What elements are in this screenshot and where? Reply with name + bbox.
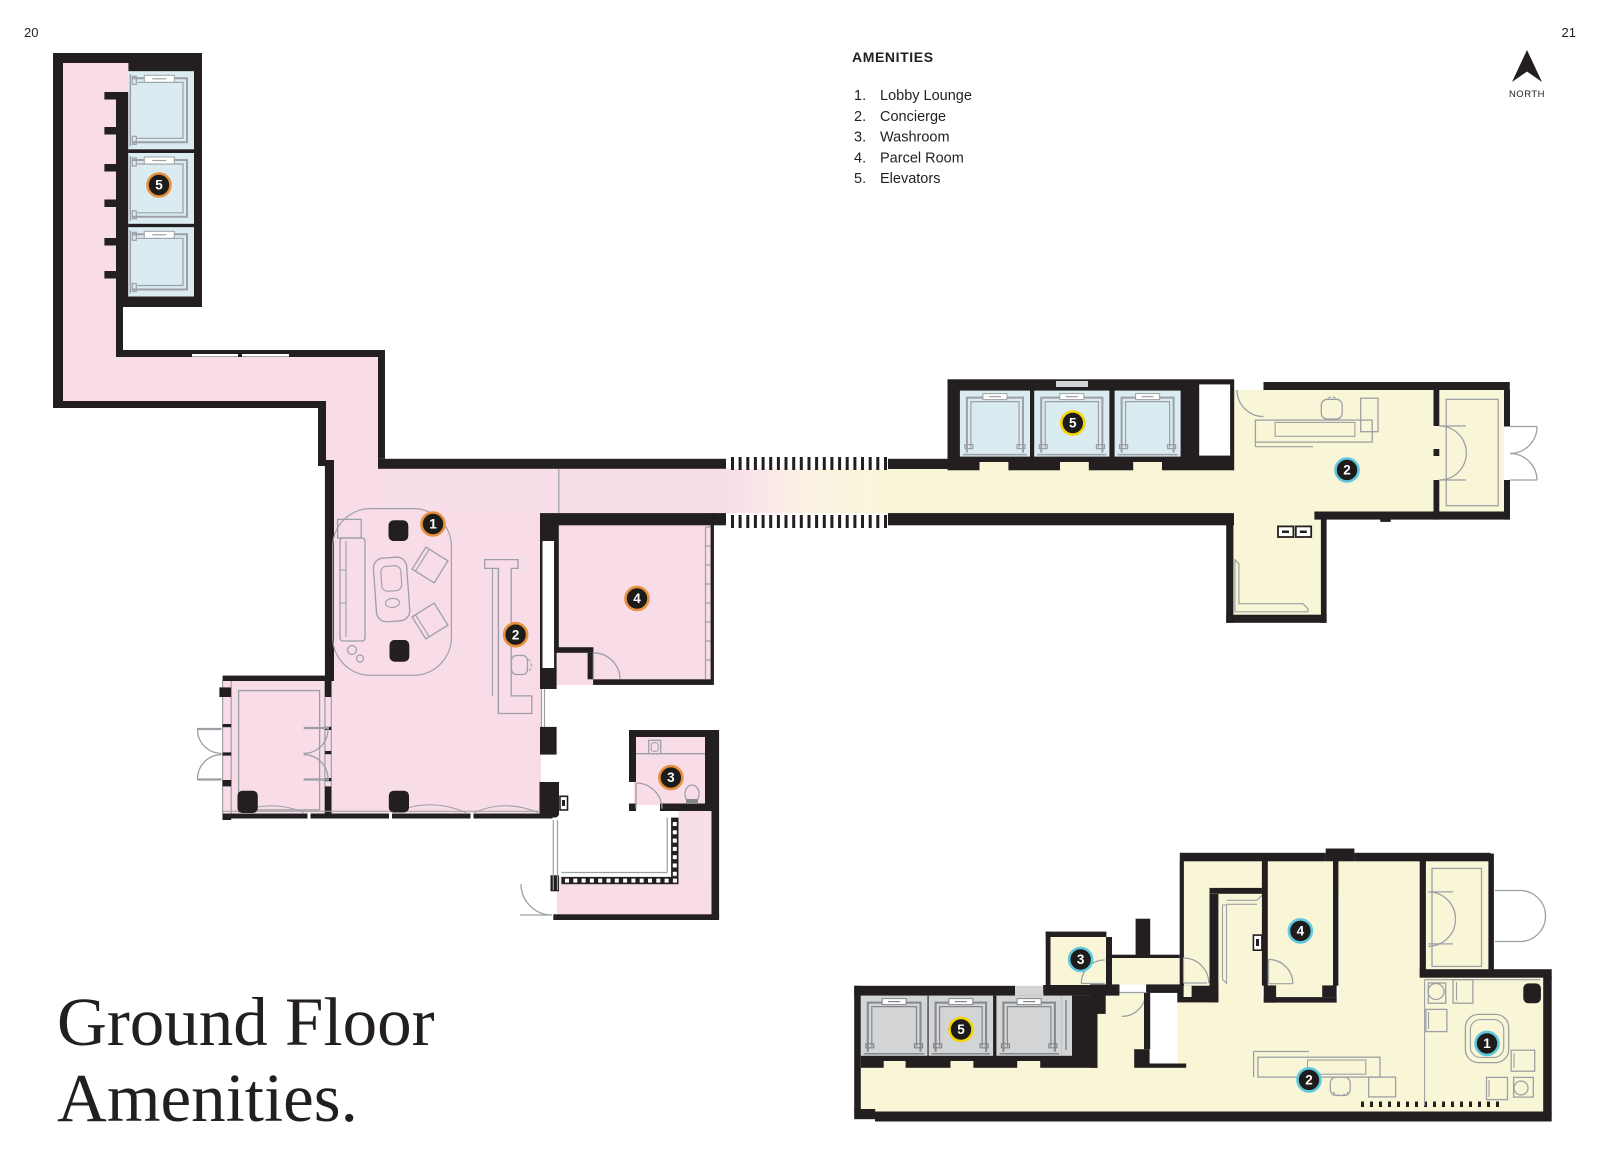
svg-text:5: 5 xyxy=(957,1022,965,1037)
svg-text:1.: 1. xyxy=(854,88,866,104)
svg-text:AMENITIES: AMENITIES xyxy=(852,49,934,65)
svg-text:2.: 2. xyxy=(854,109,866,125)
svg-text:3: 3 xyxy=(667,770,675,785)
svg-text:20: 20 xyxy=(24,25,38,40)
svg-text:4.: 4. xyxy=(854,150,866,166)
svg-text:3: 3 xyxy=(1077,952,1085,967)
svg-text:2: 2 xyxy=(1305,1073,1313,1088)
svg-text:1: 1 xyxy=(1483,1036,1491,1051)
svg-text:5: 5 xyxy=(1069,416,1077,431)
svg-text:21: 21 xyxy=(1562,25,1576,40)
svg-text:3.: 3. xyxy=(854,130,866,146)
svg-text:Ground Floor: Ground Floor xyxy=(57,984,435,1060)
svg-text:5.: 5. xyxy=(854,171,866,187)
svg-text:Concierge: Concierge xyxy=(880,109,946,125)
svg-text:Amenities.: Amenities. xyxy=(57,1060,358,1136)
svg-text:4: 4 xyxy=(633,591,641,606)
svg-text:Elevators: Elevators xyxy=(880,171,940,187)
svg-text:NORTH: NORTH xyxy=(1509,89,1545,100)
svg-text:2: 2 xyxy=(1343,463,1351,478)
svg-text:1: 1 xyxy=(429,517,437,532)
svg-text:4: 4 xyxy=(1297,924,1305,939)
svg-text:Lobby Lounge: Lobby Lounge xyxy=(880,88,972,104)
svg-text:5: 5 xyxy=(155,178,163,193)
svg-text:2: 2 xyxy=(512,627,520,642)
svg-text:Washroom: Washroom xyxy=(880,130,950,146)
svg-text:Parcel Room: Parcel Room xyxy=(880,150,964,166)
